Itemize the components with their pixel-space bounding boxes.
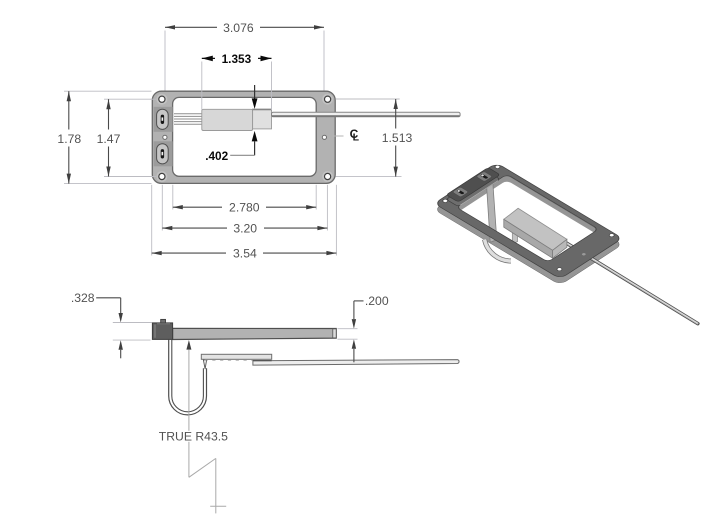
- svg-text:.200: .200: [365, 294, 389, 308]
- svg-text:1.47: 1.47: [97, 132, 121, 146]
- svg-text:.402: .402: [205, 149, 228, 163]
- svg-text:3.54: 3.54: [233, 247, 257, 261]
- svg-text:.328: .328: [71, 291, 95, 305]
- svg-text:1.513: 1.513: [382, 131, 413, 145]
- svg-text:2.780: 2.780: [229, 201, 260, 215]
- svg-text:L: L: [353, 131, 360, 143]
- svg-text:1.78: 1.78: [57, 132, 81, 146]
- svg-text:1.353: 1.353: [222, 52, 252, 66]
- svg-text:3.076: 3.076: [223, 21, 254, 35]
- svg-text:TRUE R43.5: TRUE R43.5: [159, 429, 228, 443]
- svg-text:3.20: 3.20: [233, 222, 257, 236]
